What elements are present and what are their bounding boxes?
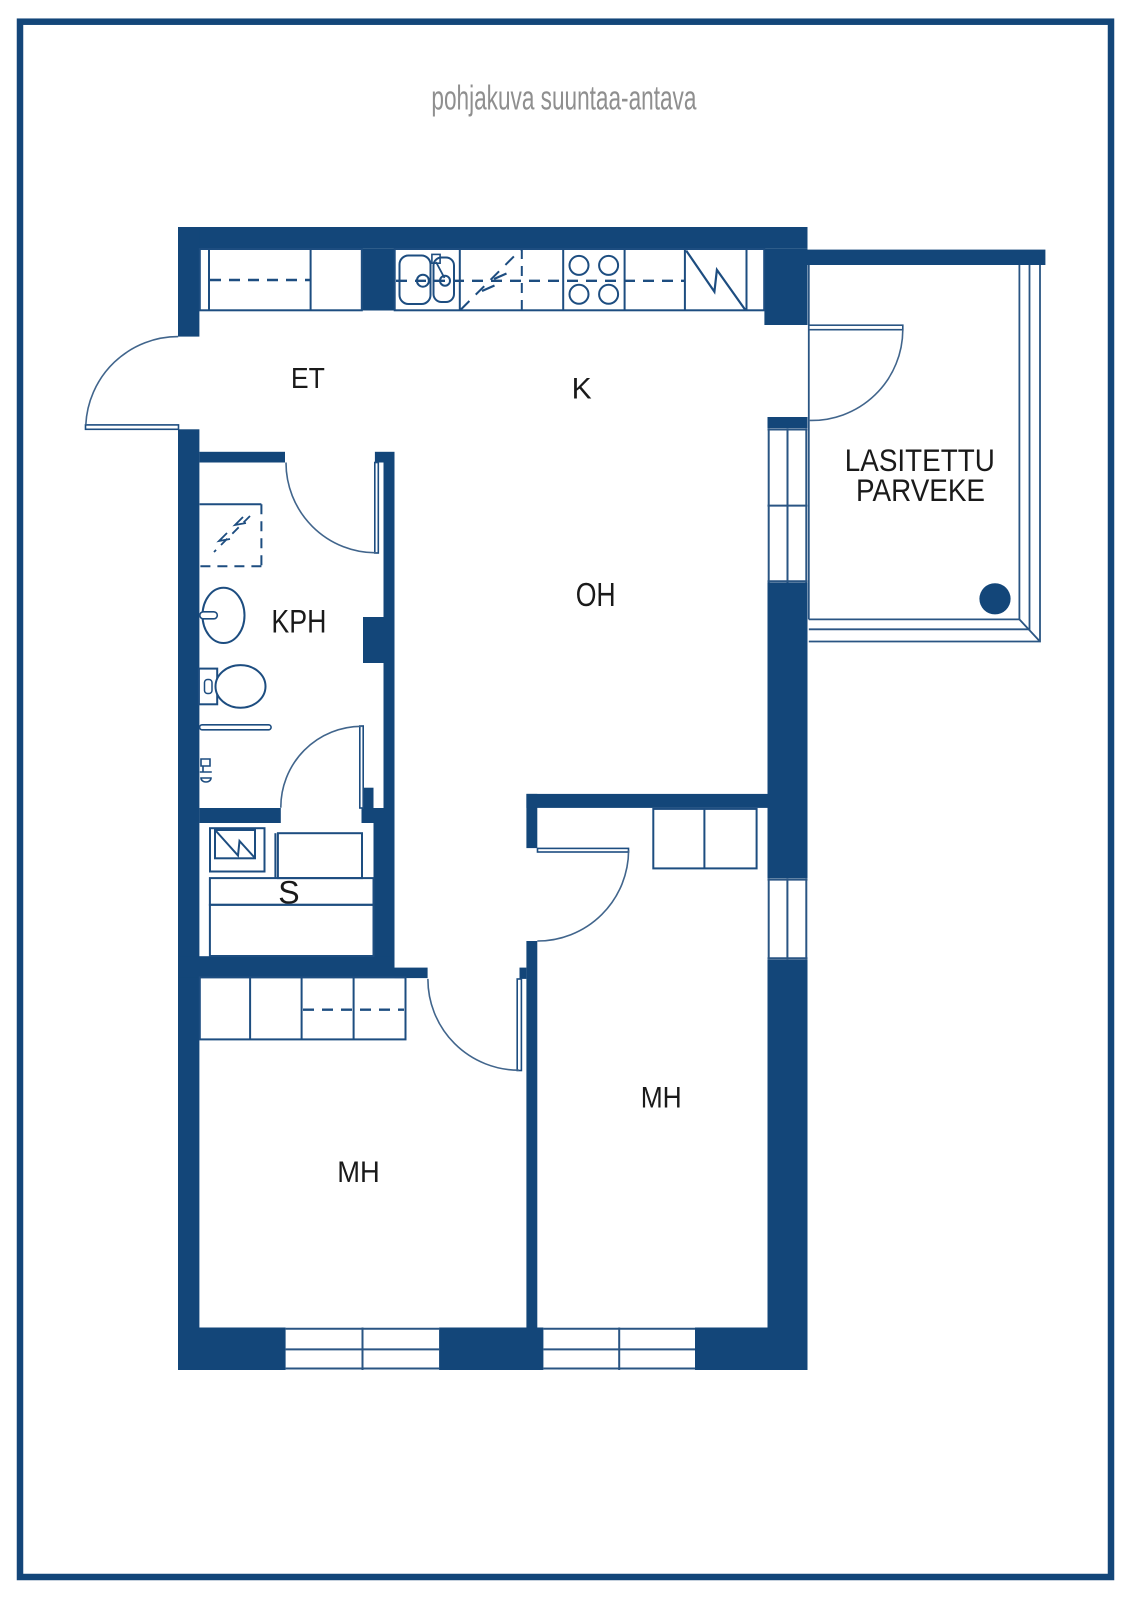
svg-text:K: K xyxy=(572,373,592,406)
svg-text:ET: ET xyxy=(291,363,325,395)
svg-text:KPH: KPH xyxy=(271,603,326,639)
svg-text:pohjakuva suuntaa-antava: pohjakuva suuntaa-antava xyxy=(431,80,696,118)
svg-text:S: S xyxy=(278,875,299,911)
svg-text:PARVEKE: PARVEKE xyxy=(856,472,985,508)
svg-text:OH: OH xyxy=(576,576,616,613)
svg-text:MH: MH xyxy=(641,1082,682,1115)
svg-text:MH: MH xyxy=(337,1156,380,1189)
